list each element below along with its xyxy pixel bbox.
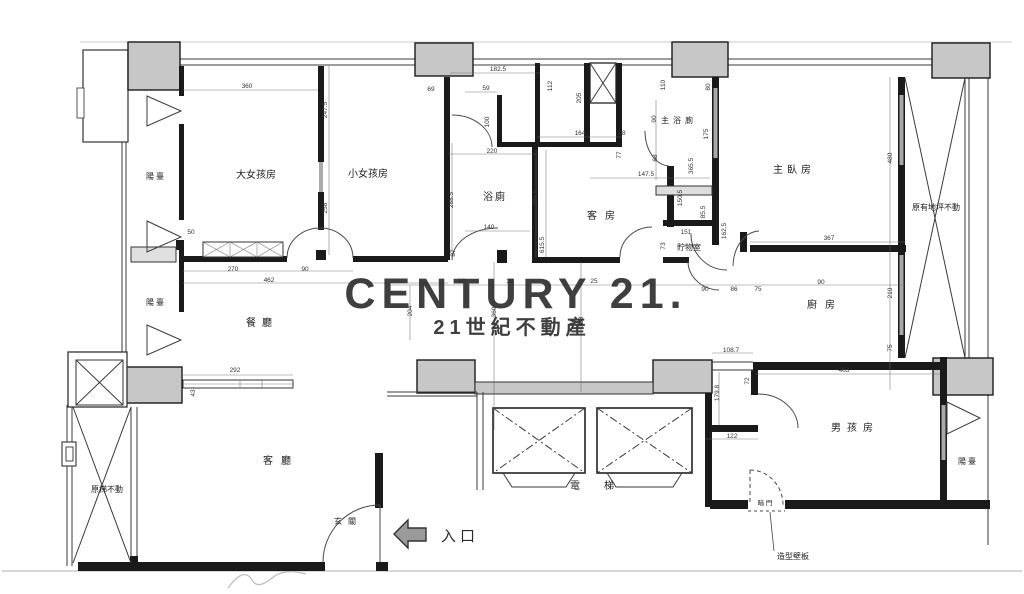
dim-label: 87 [450,249,457,257]
room-label-entry: 玄關 [334,516,362,526]
dim-label: 108.7 [723,347,740,354]
dim-label: 112 [547,80,554,91]
room-label-master-bath: 主浴廁 [661,115,697,125]
room-label-girl-big: 大女孩房 [236,168,276,181]
vanity [656,186,712,195]
dim-label: 151 [681,229,692,236]
dim-label: 205 [576,92,583,103]
room-label-girl-small: 小女孩房 [348,167,388,180]
dim-label: 59 [482,85,490,92]
dim-label: 110 [660,79,667,90]
side-elevator-shaft [68,352,127,407]
unchanged-floor-zone [905,78,965,358]
room-label-living: 客廳 [263,454,299,467]
dim-label: 360 [242,83,253,90]
floor-plan-svg: 360 247.5 258 50 69 182.5 59 100 112 205… [0,0,1024,594]
dim-label: 85.5 [700,205,707,218]
room-label-dining: 餐廳 [246,316,278,329]
dim-label: 247.5 [322,101,329,118]
dim-label: 90 [817,279,825,286]
dim-label: 292 [230,367,241,374]
dim-label: 182.5 [490,66,507,73]
dim-label: 80 [705,83,712,91]
watermark: CENTURY 21. 21世紀不動產 [344,270,687,339]
dim-label: 43 [190,389,197,397]
dim-label: 77 [616,151,623,159]
structural-columns [125,42,993,403]
dim-label: 86 [730,286,738,293]
wardrobe [203,242,283,257]
dim-label: 367 [824,235,835,242]
dim-label: 90 [701,286,709,293]
room-label-kitchen: 廚房 [807,298,843,311]
room-label-storage: 貯物室 [677,242,701,252]
dim-label: 68 [652,154,659,162]
dim-label: 175 [703,128,710,139]
elevator-shaft-right [597,408,692,487]
room-label-bath: 浴廁 [483,190,507,203]
floor-plan-page: 360 247.5 258 50 69 182.5 59 100 112 205… [0,0,1024,594]
dim-label: 122 [727,433,738,440]
dim-label: 365.5 [688,157,695,174]
dim-label: 90 [301,266,309,273]
dining-cabinet [183,380,293,388]
dim-label: 615.5 [539,236,546,253]
note-hidden-door: 暗 門 [758,498,773,507]
dim-label: 480 [887,152,894,163]
dim-label: 90 [651,115,658,123]
dim-label: 50 [187,229,195,236]
dim-label: 270 [228,266,239,273]
duct-shaft [590,63,616,103]
room-label-elevator: 電梯 [570,479,638,492]
room-label-boy: 男孩房 [831,421,879,434]
elevator-shaft-left [493,408,585,487]
watermark-line2: 21世紀不動產 [433,315,590,339]
room-label-guest: 客房 [587,209,623,222]
dim-label: 164 [575,130,586,137]
dim-label: 75 [754,286,762,293]
note-stair: 原梯不動 [91,484,123,494]
dim-label: 100 [484,116,491,127]
dim-label: 140 [484,224,495,231]
room-label-master: 主臥房 [773,163,815,176]
dim-label: 463 [839,367,850,374]
dim-label: 150.5 [677,189,684,206]
entrance-arrow-icon [394,520,426,548]
room-label-balcony-top-left: 陽臺 [146,171,166,181]
note-entrance: 入口 [441,528,479,545]
room-label-balcony-bottom-right: 陽臺 [958,456,978,466]
dim-label: 288.5 [448,191,455,208]
dim-label: 462 [264,277,275,284]
dim-label: 258 [322,202,329,213]
dim-label: 48 [618,130,626,137]
wall-niche [62,442,76,466]
dim-label: 75 [887,344,894,352]
dim-label: 72 [744,377,751,385]
watermark-line1: CENTURY 21. [344,270,687,318]
dim-label: 69 [427,86,435,93]
dim-label: 179.8 [714,384,721,401]
note-panel: 造型壁板 [777,551,809,561]
note-floor: 原有地坪不動 [912,202,960,212]
dim-label: 220 [487,148,498,155]
dim-label: 162.5 [721,222,728,239]
dim-label: 147.5 [638,171,655,178]
dim-label: 286.5 [532,189,539,206]
room-label-balcony-mid-left: 陽臺 [146,297,166,307]
pencil-scribble [228,572,306,588]
dim-label: 210 [887,287,894,298]
dim-label: 73 [660,242,667,250]
